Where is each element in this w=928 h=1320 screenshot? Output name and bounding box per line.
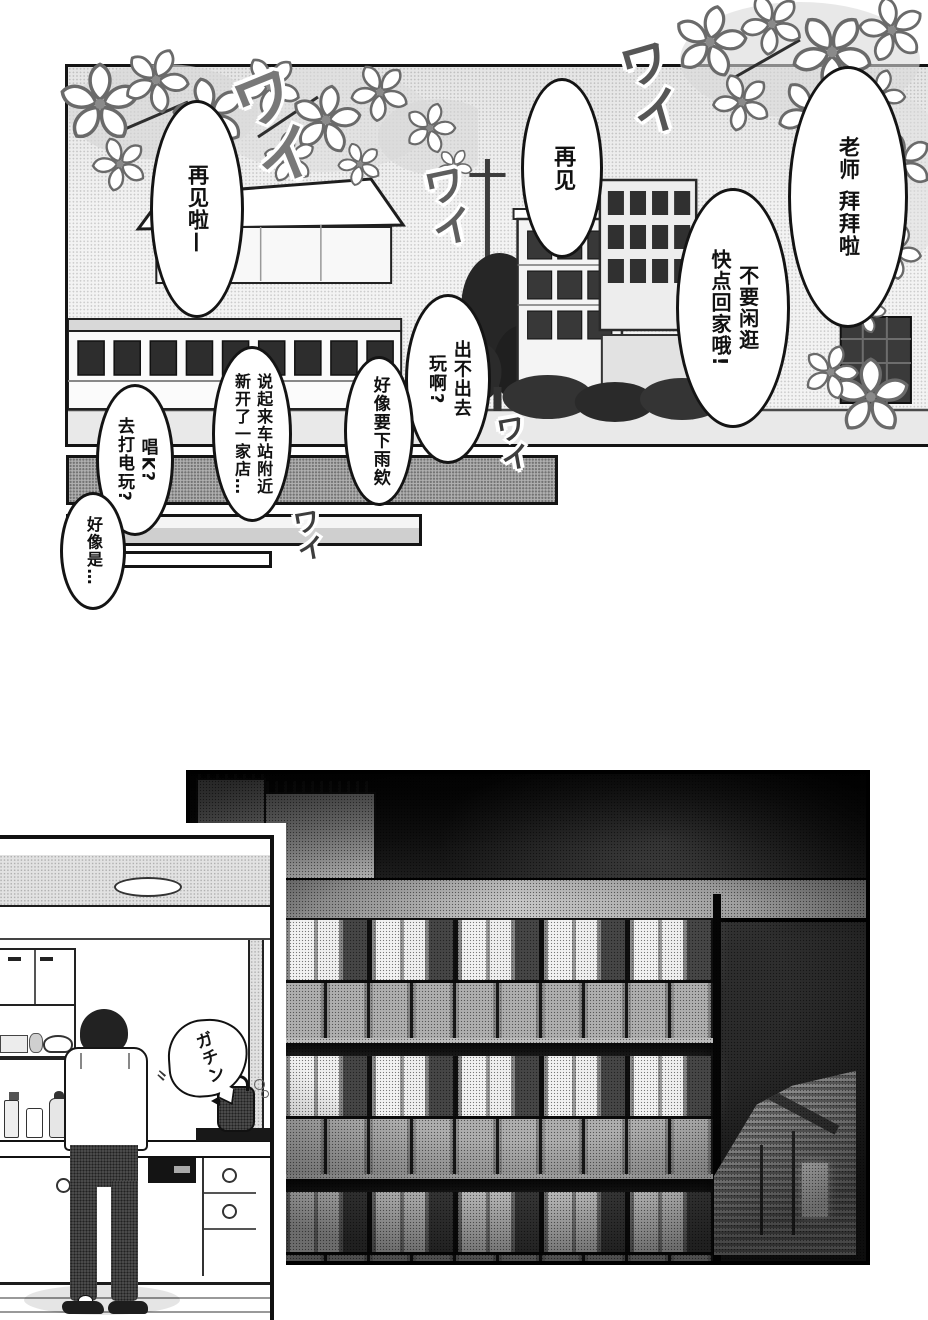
man-leg-right: [111, 1181, 138, 1301]
ceiling-light: [114, 877, 182, 897]
counter-appliance: [148, 1157, 196, 1183]
cabinet-divider: [34, 950, 36, 1006]
station-pole: [792, 1131, 795, 1235]
man-at-counter: [54, 1009, 154, 1315]
roof-fence: [198, 770, 264, 780]
apartment-facade: [281, 920, 713, 1261]
floor3-windows: [281, 1192, 713, 1252]
speech-bubble-teacher-bye: 老师 拜拜啦: [788, 66, 908, 328]
man-leg-left: [70, 1181, 97, 1301]
speech-bubble-dont-loiter: 不要闲逛 快点回家哦!: [676, 188, 790, 428]
roof-fence: [266, 781, 374, 794]
station-lit-doorway: [802, 1163, 828, 1217]
drawer-unit: [202, 1154, 256, 1276]
speech-bubble-bye-la: 再见啦—: [150, 100, 244, 318]
slipper-right: [108, 1301, 148, 1314]
manga-page: ワイ ワイ ワイ ワイ ワイ 再见啦— 再见 老师 拜拜啦 不要闲逛 快点回家哦…: [0, 0, 928, 1320]
speech-bubble-new-shop: 说起来车站附近 新开了一家店…: [212, 346, 292, 522]
distant-station: [714, 1067, 856, 1255]
floor2-windows: [281, 1056, 713, 1116]
steam-puff: [254, 1079, 265, 1090]
floor3-balcony: [281, 1252, 713, 1265]
upper-cabinet: [0, 948, 76, 1008]
panel-kitchen: 〃 ガチン: [0, 835, 274, 1320]
slipper-left: [62, 1301, 104, 1314]
sfx-wai-4: ワイ: [491, 412, 530, 474]
wall-beam-line: [0, 938, 270, 940]
man-tshirt: [64, 1047, 148, 1151]
speech-bubble-maybe: 好像是…: [60, 492, 126, 610]
station-pole: [760, 1145, 763, 1235]
floor-gap: [281, 1043, 713, 1056]
speech-bubble-rain: 好像要下雨欸: [344, 356, 414, 506]
shirt-seam: [80, 1053, 82, 1069]
shirt-seam: [128, 1053, 130, 1069]
shelf-figure: [29, 1033, 43, 1053]
appliance-handle: [174, 1166, 190, 1173]
speech-bubble-going-out: 出不出去 玩啊?: [405, 294, 491, 464]
drawer-divider: [204, 1228, 256, 1230]
steam-puff: [261, 1090, 269, 1098]
floor2-balcony: [281, 1116, 713, 1179]
cabinet-handle: [8, 957, 21, 961]
floor1-windows: [281, 920, 713, 980]
speech-bubble-bye: 再见: [521, 78, 603, 258]
floor1-balcony: [281, 980, 713, 1043]
shelf-towels: [0, 1035, 28, 1053]
panel-night-apartment: [186, 770, 870, 1265]
small-jug: [26, 1108, 43, 1138]
floor-gap: [281, 1179, 713, 1192]
station-stair-edge: [729, 1069, 840, 1134]
roof-edge-band: [228, 878, 866, 922]
drawer-divider: [204, 1192, 256, 1194]
pump-spout: [9, 1092, 19, 1100]
drawer-knob: [222, 1204, 237, 1219]
pump-bottle: [4, 1100, 19, 1138]
cabinet-handle: [40, 957, 53, 961]
drawer-knob: [222, 1168, 237, 1183]
sfx-gachin-text: ガチン: [187, 1028, 228, 1087]
